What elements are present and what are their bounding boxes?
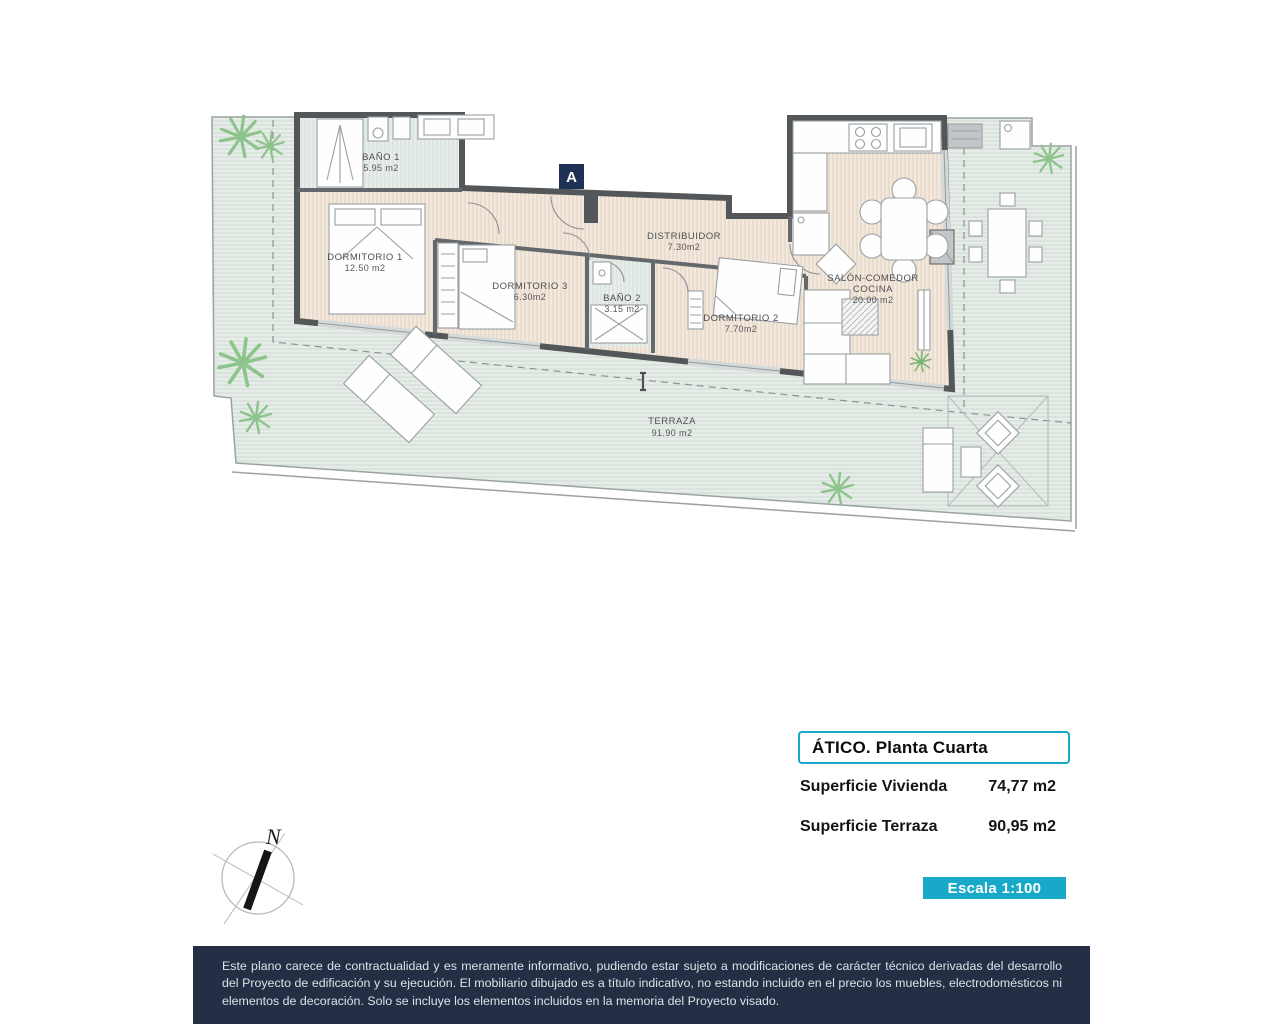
room-label-salon-2: COCINA bbox=[853, 284, 893, 295]
room-label-bano2: BAÑO 2 bbox=[603, 293, 641, 304]
outdoor-grill bbox=[948, 124, 982, 148]
compass-needle bbox=[247, 851, 268, 909]
surface-row-vivienda: Superficie Vivienda 74,77 m2 bbox=[800, 778, 1056, 796]
side-table-right bbox=[961, 447, 981, 477]
info-panel: ÁTICO. Planta Cuarta Superficie Vivienda… bbox=[798, 731, 1068, 906]
floor-plan-drawing: A BAÑO 1 5.95 m2 DORMITORIO 1 12.50 m2 D… bbox=[0, 0, 1280, 1024]
room-area-dorm3: 6.30m2 bbox=[514, 292, 546, 302]
room-area-dorm2: 7.70m2 bbox=[725, 324, 757, 334]
room-label-salon: SALÓN-COMEDOR bbox=[827, 273, 918, 284]
room-label-distribuidor: DISTRIBUIDOR bbox=[647, 231, 721, 242]
floor-plan-page: A BAÑO 1 5.95 m2 DORMITORIO 1 12.50 m2 D… bbox=[0, 0, 1280, 1024]
surface-terraza-value: 90,95 m2 bbox=[988, 818, 1056, 836]
room-area-bano2: 3.15 m2 bbox=[604, 304, 639, 314]
plan-title: ÁTICO. Planta Cuarta bbox=[812, 738, 988, 758]
shower-bath1 bbox=[317, 119, 363, 187]
room-label-bano1: BAÑO 1 bbox=[362, 152, 400, 163]
disclaimer-footer: Este plano carece de contractualidad y e… bbox=[193, 946, 1090, 1024]
outdoor-unit bbox=[1000, 121, 1030, 149]
section-marker-a: A bbox=[559, 164, 584, 189]
kitchen-sink bbox=[894, 124, 932, 151]
room-area-terraza: 91.90 m2 bbox=[652, 428, 693, 438]
room-area-dorm1: 12.50 m2 bbox=[345, 263, 386, 273]
tv-unit-salon bbox=[918, 290, 930, 350]
room-area-distribuidor: 7.30m2 bbox=[668, 242, 700, 252]
surface-row-terraza: Superficie Terraza 90,95 m2 bbox=[800, 818, 1056, 836]
room-label-dorm3: DORMITORIO 3 bbox=[492, 281, 568, 292]
toilet-bath1 bbox=[368, 117, 388, 141]
room-label-terraza: TERRAZA bbox=[648, 416, 696, 427]
compass-north-label: N bbox=[265, 826, 282, 849]
room-area-salon: 20.00 m2 bbox=[853, 295, 894, 305]
room-label-dorm1: DORMITORIO 1 bbox=[327, 252, 403, 263]
scale-badge: Escala 1:100 bbox=[923, 877, 1066, 899]
section-marker-label: A bbox=[566, 169, 577, 186]
bidet-bath1 bbox=[393, 117, 410, 139]
wardrobe-dorm3 bbox=[438, 243, 458, 328]
disclaimer-text: Este plano carece de contractualidad y e… bbox=[222, 958, 1062, 1010]
sink-bath2 bbox=[593, 262, 611, 284]
entrance-wall-stub bbox=[584, 193, 598, 223]
surface-vivienda-value: 74,77 m2 bbox=[988, 778, 1056, 796]
surface-vivienda-label: Superficie Vivienda bbox=[800, 778, 947, 796]
surface-terraza-label: Superficie Terraza bbox=[800, 818, 938, 836]
compass: N bbox=[206, 826, 310, 930]
room-label-dorm2: DORMITORIO 2 bbox=[703, 313, 779, 324]
lounger-right bbox=[923, 428, 953, 492]
plan-title-box: ÁTICO. Planta Cuarta bbox=[798, 731, 1070, 764]
kitchen-hob bbox=[849, 124, 887, 151]
wardrobe-dorm2 bbox=[688, 291, 703, 329]
double-sink-bath1 bbox=[418, 115, 494, 139]
room-area-bano1: 5.95 m2 bbox=[363, 163, 398, 173]
